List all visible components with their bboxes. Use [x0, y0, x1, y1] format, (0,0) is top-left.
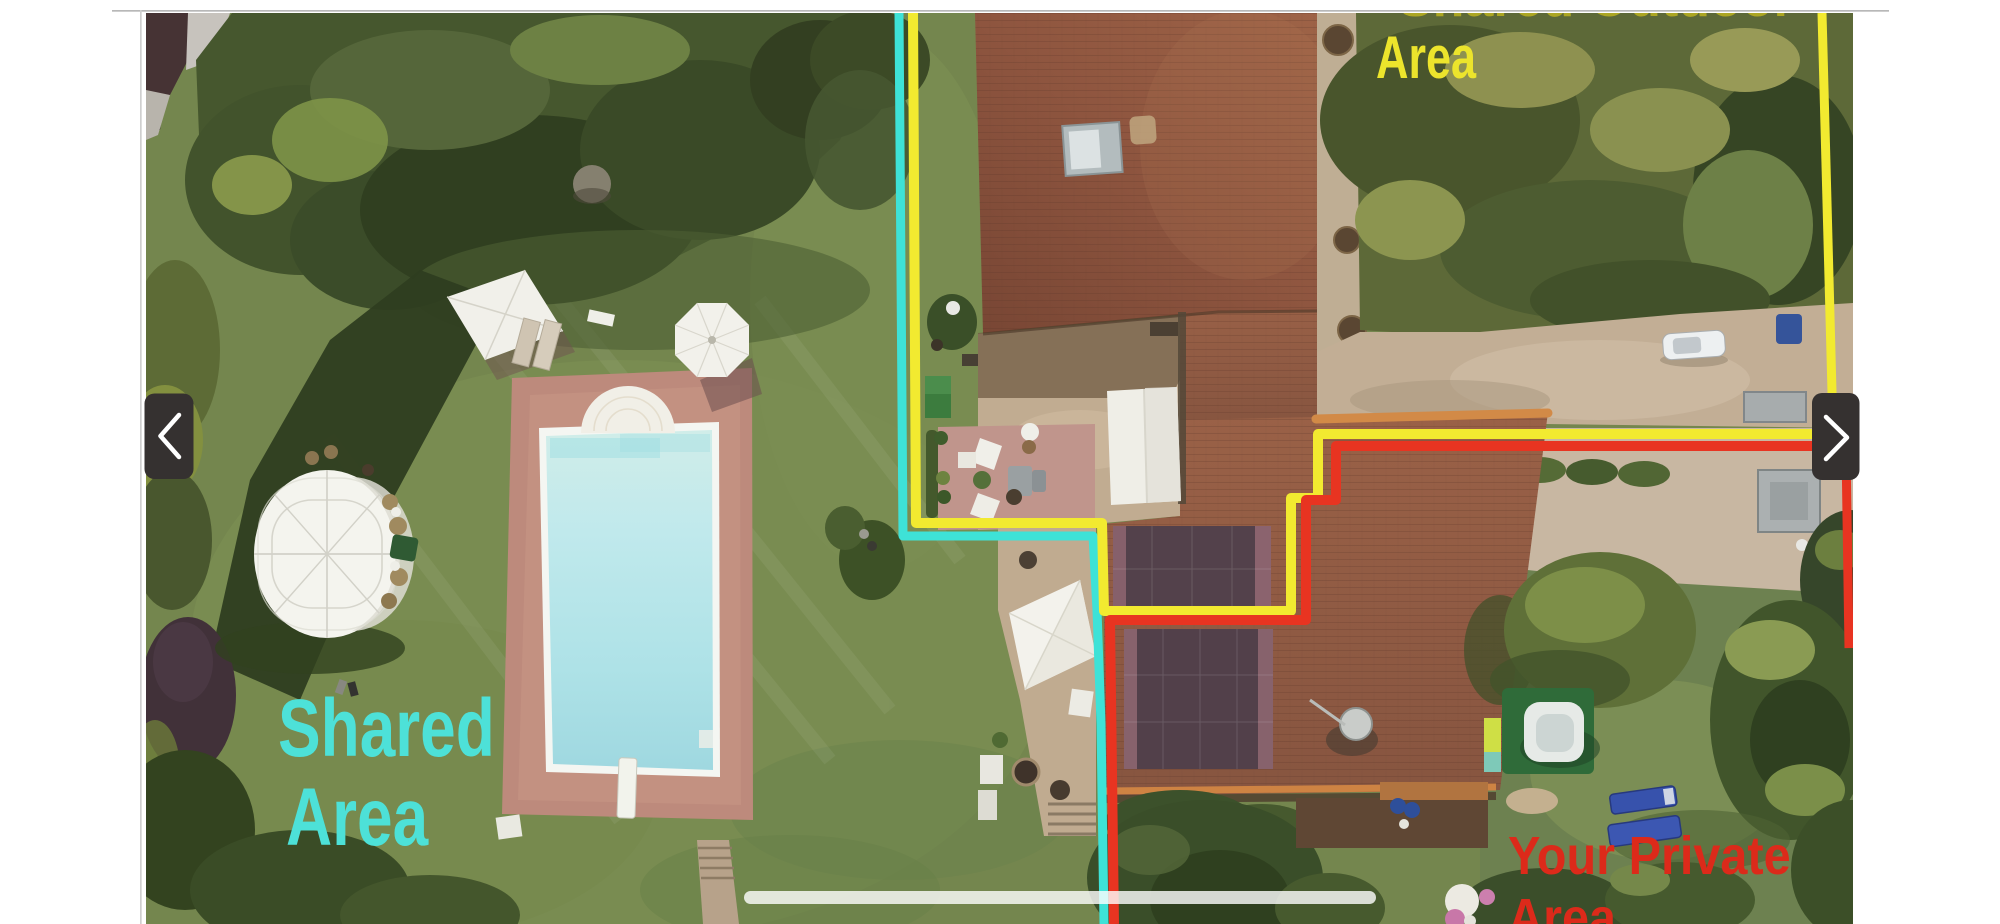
- svg-text:Shared: Shared: [278, 681, 495, 774]
- svg-text:Area: Area: [1508, 887, 1616, 924]
- svg-text:Area: Area: [1376, 25, 1476, 92]
- svg-text:Area: Area: [286, 770, 429, 863]
- svg-text:Your Private: Your Private: [1508, 825, 1791, 886]
